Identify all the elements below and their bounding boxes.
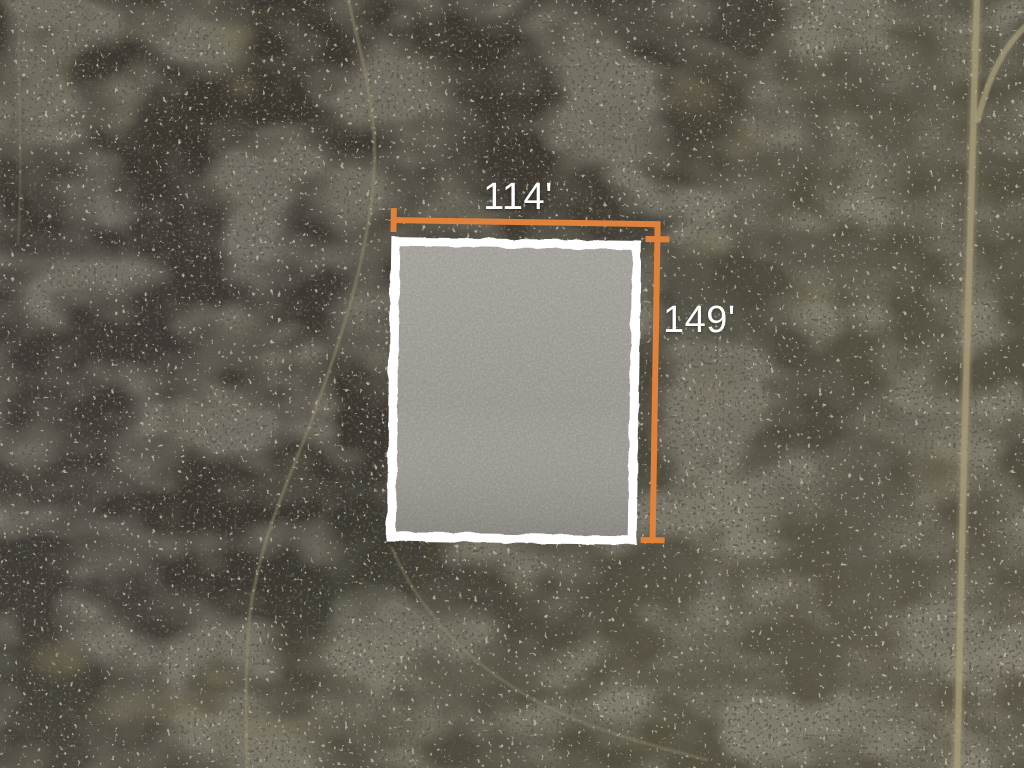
satellite-map: 114' 149' (0, 0, 1024, 768)
height-dimension-label: 149' (663, 301, 736, 339)
parcel-boundary (387, 237, 642, 545)
parcel-annotation-layer (0, 0, 1024, 768)
width-dimension-label: 114' (438, 178, 598, 216)
